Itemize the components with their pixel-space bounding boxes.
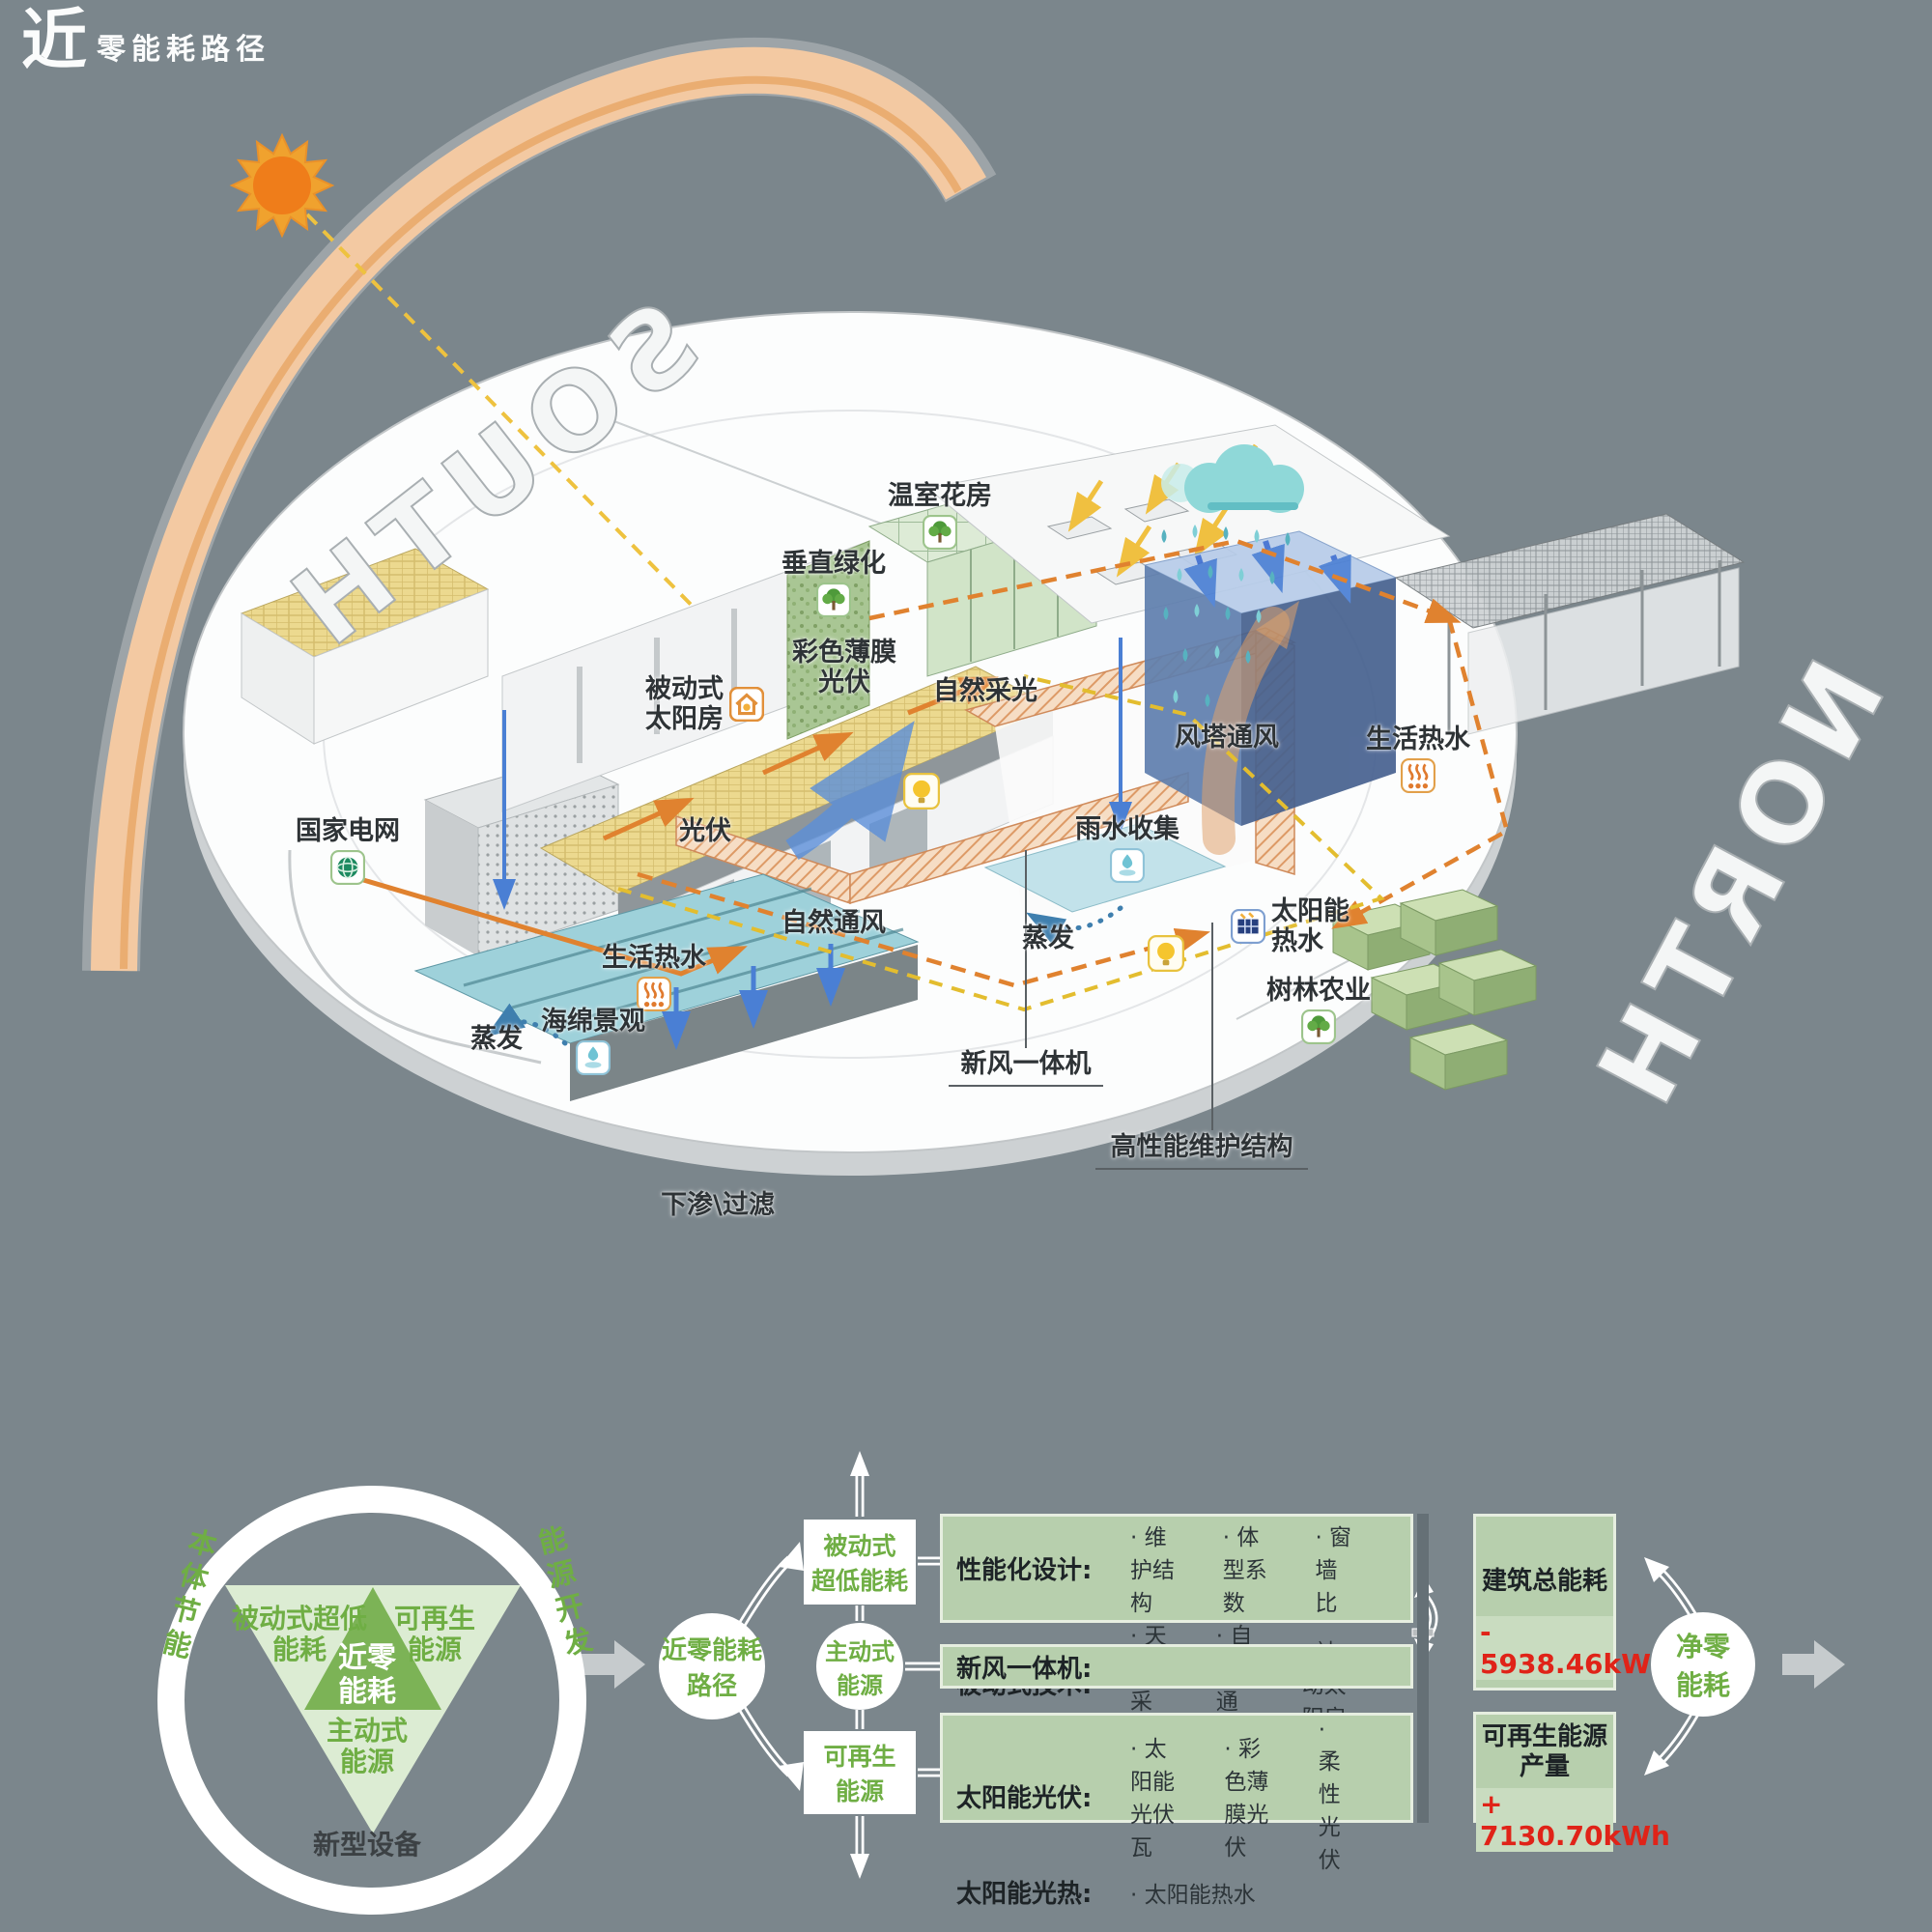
label-rain-collection-text: 雨水收集 <box>1075 814 1179 844</box>
node-passive: 被动式 超低能耗 <box>804 1520 916 1605</box>
cycle-center-label: 近零 能耗 <box>324 1642 411 1709</box>
logo: 近 零能耗路径 <box>21 8 270 73</box>
label-vertical-greening: 垂直绿化 <box>771 549 896 617</box>
label-greenhouse-text: 温室花房 <box>888 481 992 511</box>
label-dhw-left: 生活热水 <box>591 943 717 1011</box>
row-label: 新风一体机: <box>956 1649 1092 1685</box>
label-envelope: 高性能维护结构 <box>1095 1132 1308 1170</box>
label-pv: 光伏 <box>671 816 739 846</box>
label-vertical-greening-text: 垂直绿化 <box>781 549 886 579</box>
node-net-zero: 净零 能耗 <box>1651 1612 1755 1717</box>
node-active: 主动式 能源 <box>816 1623 903 1710</box>
label-greenhouse: 温室花房 <box>877 481 1003 550</box>
label-national-grid-text: 国家电网 <box>296 816 400 846</box>
label-sponge-landscape-text: 海绵景观 <box>541 1007 645 1037</box>
cycle-equipment-label: 新型设备 <box>304 1830 430 1861</box>
label-sponge-landscape: 海绵景观 <box>530 1007 656 1075</box>
row-item: · 维护结构 <box>1130 1519 1180 1617</box>
label-dhw-right-text: 生活热水 <box>1366 724 1470 754</box>
label-forest-agriculture: 树林农业 <box>1256 976 1381 1044</box>
result-renewable-value: + 7130.70kWh <box>1476 1788 1613 1852</box>
row-item: · 太阳能热水 <box>1130 1876 1256 1909</box>
axonometric-scene: SOUTH NORTH 国家电网 温室花房 垂直绿化 彩色薄膜 光伏 被动式 太… <box>0 0 1932 1401</box>
label-dhw-right: 生活热水 <box>1355 724 1481 793</box>
poster: 近 零能耗路径 <box>0 0 1932 1932</box>
arrow-right-icon <box>1782 1640 1845 1689</box>
label-passive-solar-text: 被动式 太阳房 <box>645 674 724 734</box>
label-solar-hot-water-text: 太阳能 热水 <box>1271 896 1350 956</box>
panel-row: 太阳能光伏: · 太阳能光伏瓦 · 彩色薄膜光伏 · 柔性光伏 <box>956 1718 1397 1874</box>
result-total-energy: 建筑总能耗 - 5938.46kWh <box>1473 1514 1616 1690</box>
row-item: · 彩色薄膜光伏 <box>1224 1730 1275 1861</box>
row-item: · 太阳能光伏瓦 <box>1130 1730 1181 1861</box>
panel-row: 新风一体机: <box>956 1649 1397 1685</box>
label-infiltration: 下渗\过滤 <box>655 1190 781 1220</box>
tree-icon <box>816 582 851 617</box>
solar-panel-icon <box>1231 909 1265 944</box>
label-film-pv: 彩色薄膜 光伏 <box>781 638 907 697</box>
panel-row: 太阳能光热: · 太阳能热水 <box>956 1874 1397 1910</box>
node-pathway: 近零能耗 路径 <box>659 1613 765 1719</box>
label-daylight: 自然采光 <box>923 676 1048 706</box>
label-forest-agriculture-text: 树林农业 <box>1266 976 1371 1006</box>
result-renewable-title: 可再生能源 产量 <box>1482 1722 1607 1782</box>
label-natural-ventilation: 自然通风 <box>771 908 896 938</box>
panel-renewable: 太阳能光伏: · 太阳能光伏瓦 · 彩色薄膜光伏 · 柔性光伏 太阳能光热: ·… <box>940 1713 1413 1823</box>
row-label: 太阳能光热: <box>956 1874 1130 1910</box>
bulb-icon <box>1148 935 1184 972</box>
result-renewable-energy: 可再生能源 产量 + 7130.70kWh <box>1473 1712 1616 1823</box>
water-drop-icon <box>576 1040 611 1075</box>
label-rain-collection: 雨水收集 <box>1065 814 1190 883</box>
label-solar-hot-water: 太阳能 热水 <box>1231 896 1350 956</box>
row-label: 性能化设计: <box>956 1550 1130 1586</box>
logo-small: 零能耗路径 <box>97 25 270 68</box>
label-evaporation-mid: 蒸发 <box>1014 923 1082 953</box>
node-renewable: 可再生 能源 <box>804 1731 916 1814</box>
label-passive-solar: 被动式 太阳房 <box>645 674 764 734</box>
passive-solar-house-icon <box>729 687 764 722</box>
globe-icon <box>330 850 365 885</box>
panel-fresh-air: 新风一体机: <box>940 1644 1413 1689</box>
panel-row: 性能化设计: · 维护结构 · 体型系数 · 窗墙比 <box>956 1519 1397 1617</box>
row-item: · 窗墙比 <box>1315 1519 1354 1617</box>
result-total-title: 建筑总能耗 <box>1482 1567 1607 1597</box>
logo-big: 近 <box>21 8 87 73</box>
row-item: · 柔性光伏 <box>1319 1718 1354 1874</box>
label-dhw-left-text: 生活热水 <box>602 943 706 973</box>
sun-icon <box>232 135 332 236</box>
cycle-active-label: 主动式 能源 <box>309 1716 425 1777</box>
row-item: · 体型系数 <box>1223 1519 1273 1617</box>
bulb-icon <box>903 773 940 810</box>
label-wind-tower: 风塔通风 <box>1164 723 1290 753</box>
result-total-value: - 5938.46kWh <box>1476 1616 1613 1680</box>
near-zero-cycle-diagram: 本体节能 能源开发 被动式超低 能耗 可再生 能源 近零 能耗 主动式 能源 新… <box>157 1486 586 1915</box>
tree-icon <box>923 515 957 550</box>
row-label: 太阳能光伏: <box>956 1778 1130 1814</box>
label-national-grid: 国家电网 <box>285 816 411 885</box>
label-fresh-air-unit: 新风一体机 <box>949 1049 1103 1087</box>
separator-bar <box>1417 1514 1429 1823</box>
label-evaporation-left: 蒸发 <box>463 1024 530 1054</box>
hot-water-icon <box>1401 758 1435 793</box>
water-drop-icon <box>1110 848 1145 883</box>
panel-passive: 性能化设计: · 维护结构 · 体型系数 · 窗墙比 被动式技术: · 天然采光… <box>940 1514 1413 1623</box>
tree-icon <box>1301 1009 1336 1044</box>
